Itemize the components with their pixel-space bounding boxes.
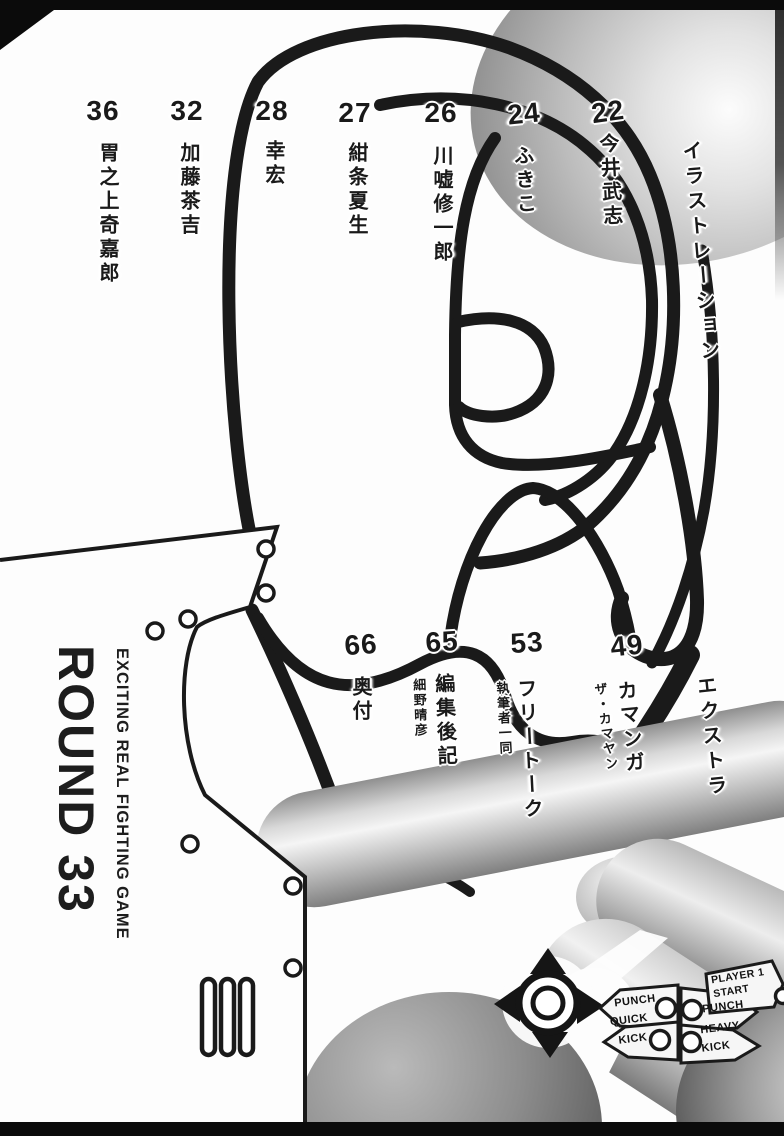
toc-entry-name: 川嘘修一郎 [428,145,454,265]
toc-page-number: 53 [496,625,558,661]
toc-page-number: 32 [157,95,217,127]
toc-entry-name: 加藤茶吉 [175,142,201,238]
doujinshi-toc-page: イラストレーション 22 今井武志 24 ふきこ 26 川嘘修一郎 27 紺条夏… [0,0,784,1136]
toc-entry-name: 今井武志 [594,132,625,229]
toc-entry-name: ふきこ [508,144,538,217]
toc-page-number: 26 [411,97,471,129]
toc-page-number: 28 [242,95,302,127]
toc-entry-title: 編集後記 [429,673,458,770]
top-edge-bar [0,0,784,10]
toc-page-number: 49 [595,627,658,665]
toc-entry-name: 紺条夏生 [343,142,369,238]
toc-entry-author: 執筆者一同 [492,681,514,757]
tagline: EXCITING REAL FIGHTING GAME [111,648,131,973]
toc-entry-author: 細野晴彦 [409,678,429,739]
bottom-edge-bar [0,1122,784,1136]
round-title: ROUND 33 [55,645,105,975]
corner-fold [0,10,54,50]
toc-page-number: 24 [492,95,555,133]
vent-slots-icon [202,979,253,1055]
toc-entry-name: 幸宏 [260,140,286,188]
toc-page-number: 36 [73,95,133,127]
machine-panel [0,527,305,1136]
toc-entry-name: 胃之上奇嘉郎 [94,142,120,286]
toc-page-number: 65 [411,624,473,660]
toc-entry-title: 奥付 [347,676,373,724]
toc-page-number: 66 [330,627,392,663]
toc-page-number: 27 [325,97,385,129]
